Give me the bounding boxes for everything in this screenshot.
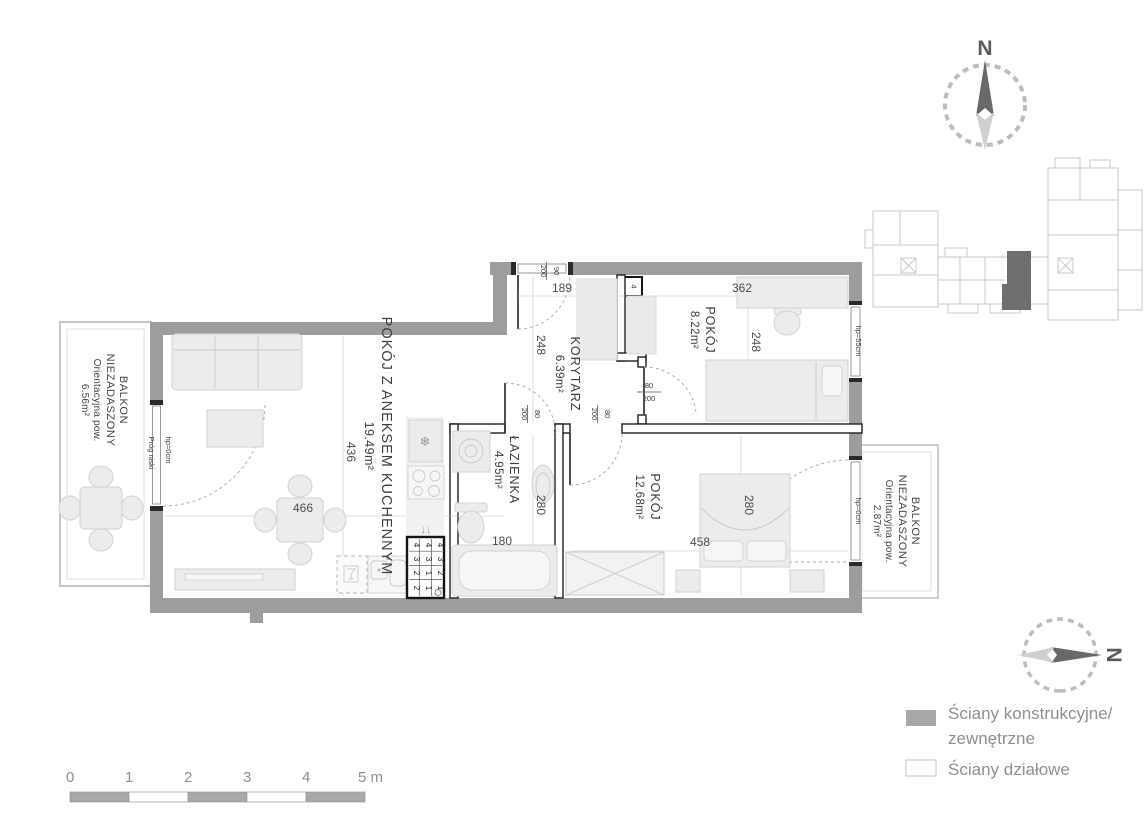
svg-text:Orientacyjna pow.: Orientacyjna pow. <box>883 480 894 563</box>
floor-plan-page: BALKON NIEZADASZONY Orientacyjna pow. 6.… <box>0 0 1148 816</box>
svg-text:90: 90 <box>552 267 561 275</box>
svg-text:1: 1 <box>436 586 445 591</box>
compass-needle-north <box>976 60 994 116</box>
svg-text:zewnętrzne: zewnętrzne <box>948 729 1035 748</box>
svg-text:189: 189 <box>552 281 572 295</box>
svg-text:BALKON: BALKON <box>117 376 129 424</box>
desk-and-chair <box>737 277 848 335</box>
nightstand-right <box>790 570 824 592</box>
washing-machine <box>453 431 490 472</box>
walls-legend: Ściany konstrukcyjne/ zewnętrzne Ściany … <box>906 704 1113 779</box>
dishwasher-cabinet <box>337 556 367 593</box>
svg-text:436: 436 <box>344 442 358 462</box>
installation-shaft: 4 4 4 3 3 3 2 1 2 2 1 1 <box>407 537 445 598</box>
dishwasher-arrows-icon: ↓↓ <box>421 524 432 536</box>
svg-text:1: 1 <box>424 586 433 591</box>
sill-label-right: hp=0cm <box>854 498 863 525</box>
svg-text:4: 4 <box>436 543 445 548</box>
svg-text:N: N <box>1102 647 1125 662</box>
svg-text:POKÓJ: POKÓJ <box>703 306 718 353</box>
svg-text:KORYTARZ: KORYTARZ <box>568 337 582 412</box>
svg-text:2.87m²: 2.87m² <box>871 505 882 538</box>
svg-text:2: 2 <box>412 586 421 591</box>
svg-text:80: 80 <box>533 410 542 418</box>
small-room-wardrobe <box>627 296 656 354</box>
bedroom-door: 200 80 <box>570 405 622 485</box>
svg-text:248: 248 <box>749 332 763 352</box>
room-label-small-room: POKÓJ 8.22m² <box>688 306 718 353</box>
svg-text:Orientacyjna pow.: Orientacyjna pow. <box>91 359 102 442</box>
svg-text:0: 0 <box>66 769 74 786</box>
svg-text:3: 3 <box>436 557 445 562</box>
bedroom-wardrobe <box>566 552 664 595</box>
svg-text:200: 200 <box>590 408 599 421</box>
svg-text:BALKON: BALKON <box>909 497 921 545</box>
svg-text:3: 3 <box>243 769 251 786</box>
bathroom-door: 200 80 <box>505 383 555 433</box>
compass-plan-oriented: N <box>1018 619 1125 691</box>
svg-text:458: 458 <box>690 535 710 549</box>
window-right: hp=55cm <box>849 301 863 382</box>
svg-text:2: 2 <box>436 571 445 576</box>
furniture-sofa <box>172 334 302 390</box>
svg-text:1: 1 <box>125 769 133 786</box>
svg-text:5 m: 5 m <box>358 769 383 786</box>
svg-text:4: 4 <box>412 543 421 548</box>
svg-text:2: 2 <box>184 769 192 786</box>
double-bed <box>700 474 790 567</box>
svg-text:Ściany konstrukcyjne/: Ściany konstrukcyjne/ <box>948 704 1113 723</box>
svg-text:2: 2 <box>412 571 421 576</box>
corridor-wardrobe <box>577 279 617 360</box>
fridge-icon: ❄ <box>420 434 431 449</box>
svg-text:1: 1 <box>424 571 433 576</box>
coffee-table <box>207 410 263 447</box>
svg-text:19.49m²: 19.49m² <box>362 422 376 471</box>
svg-text:4: 4 <box>424 543 433 548</box>
toilet <box>455 503 487 543</box>
room-label-bathroom: ŁAZIENKA 4.95m² <box>492 436 521 504</box>
room-label-corridor: KORYTARZ 6.39m² <box>553 337 582 412</box>
svg-text:POKÓJ Z ANEKSEM KUCHENNYM: POKÓJ Z ANEKSEM KUCHENNYM <box>378 317 395 576</box>
room-label-bedroom: POKÓJ 12.68m² <box>633 473 663 520</box>
svg-text:6.39m²: 6.39m² <box>553 355 565 393</box>
building-overview-map <box>865 158 1142 320</box>
compass-north: N <box>945 37 1025 150</box>
legend-swatch-partition <box>906 760 936 776</box>
single-bed <box>706 360 848 421</box>
svg-text:NIEZADASZONY: NIEZADASZONY <box>896 475 908 568</box>
svg-text:180: 180 <box>492 534 512 548</box>
svg-text:200: 200 <box>520 408 529 421</box>
nightstand-left <box>676 570 700 592</box>
svg-text:200: 200 <box>643 394 656 403</box>
svg-text:Ściany działowe: Ściany działowe <box>948 760 1070 779</box>
svg-text:POKÓJ: POKÓJ <box>648 473 663 520</box>
dining-table-set <box>254 475 346 565</box>
floor-plan-drawing: BALKON NIEZADASZONY Orientacyjna pow. 6.… <box>0 0 1148 816</box>
svg-text:6.56m²: 6.56m² <box>79 384 90 417</box>
svg-text:280: 280 <box>742 495 756 515</box>
hob <box>408 466 444 499</box>
svg-text:3: 3 <box>412 557 421 562</box>
svg-text:NIEZADASZONY: NIEZADASZONY <box>104 354 116 447</box>
svg-text:4: 4 <box>302 769 310 786</box>
svg-text:200: 200 <box>539 265 548 278</box>
scale-bar: 0 1 2 3 4 5 m <box>66 769 383 802</box>
svg-text:4: 4 <box>630 284 639 288</box>
svg-text:248: 248 <box>534 335 548 355</box>
svg-text:ŁAZIENKA: ŁAZIENKA <box>507 436 521 504</box>
threshold-label: Próg niski <box>147 437 156 470</box>
svg-text:4.95m²: 4.95m² <box>492 451 504 489</box>
bathtub <box>452 545 557 596</box>
room-label-living: POKÓJ Z ANEKSEM KUCHENNYM 19.49m² <box>362 317 395 576</box>
svg-text:N: N <box>977 37 992 60</box>
small-room-door: 80 200 <box>637 367 696 415</box>
tv-bench <box>175 569 295 590</box>
svg-text:80: 80 <box>645 381 653 390</box>
sill-label-left: hp=0cm <box>164 437 173 464</box>
sill-55-label: hp=55cm <box>854 325 863 356</box>
fridge: ❄ <box>409 420 442 462</box>
svg-text:80: 80 <box>603 410 612 418</box>
svg-text:362: 362 <box>732 281 752 295</box>
svg-text:8.22m²: 8.22m² <box>688 311 700 349</box>
svg-text:3: 3 <box>424 557 433 562</box>
svg-text:466: 466 <box>293 501 313 515</box>
balcony-left: BALKON NIEZADASZONY Orientacyjna pow. 6.… <box>59 322 151 586</box>
legend-swatch-structural <box>906 710 936 726</box>
balcony-right: BALKON NIEZADASZONY Orientacyjna pow. 2.… <box>855 445 938 598</box>
svg-text:12.68m²: 12.68m² <box>633 475 645 520</box>
svg-text:280: 280 <box>534 495 548 515</box>
